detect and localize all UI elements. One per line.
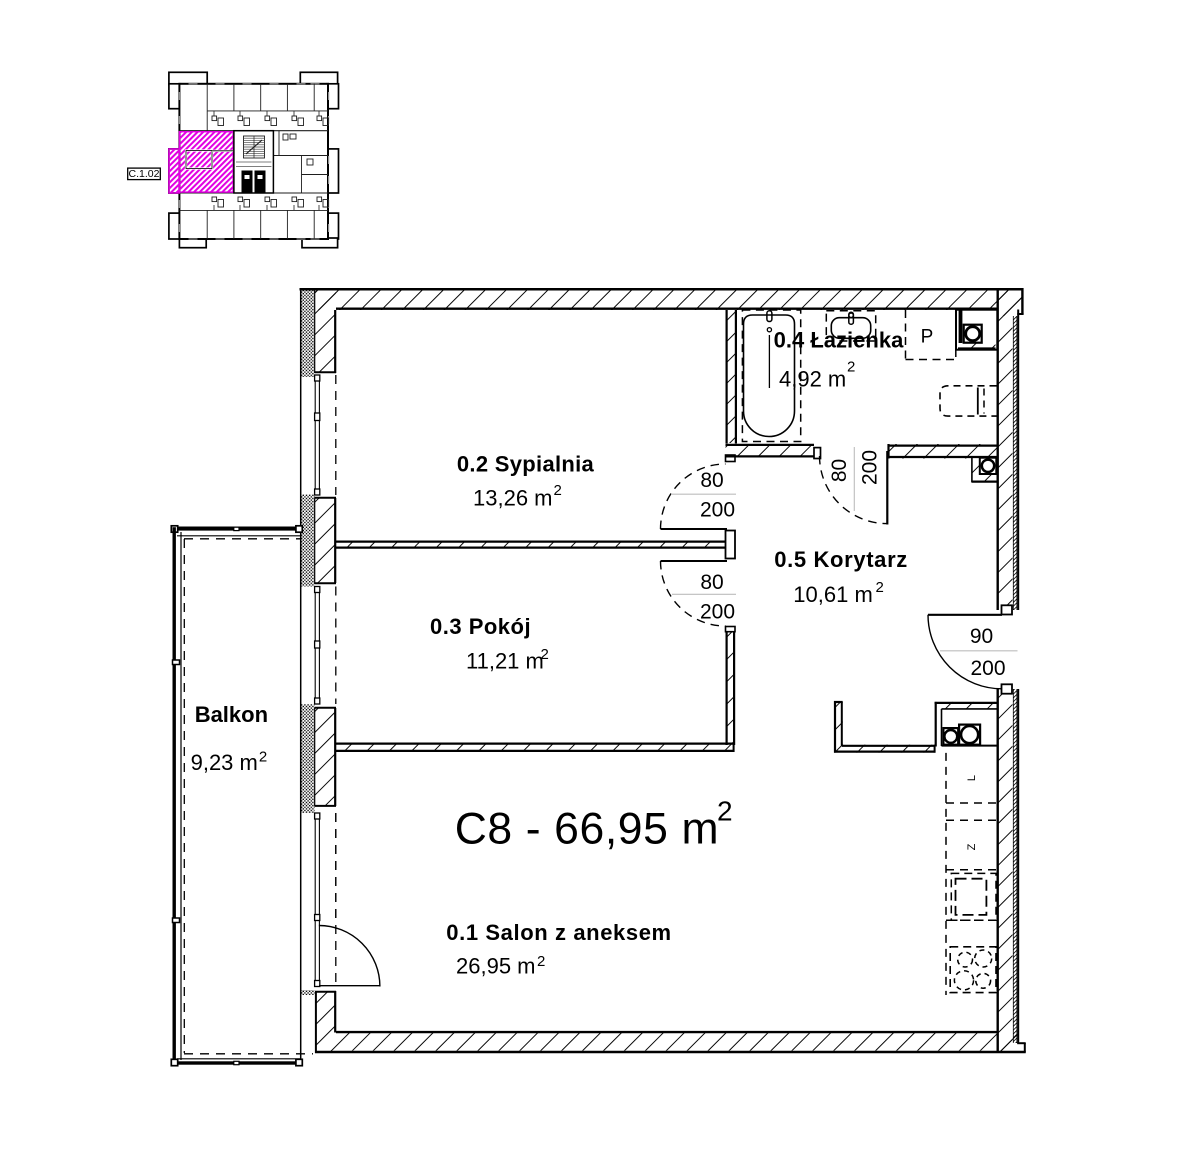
svg-text:200: 200: [970, 657, 1005, 680]
svg-text:9,23 m: 9,23 m: [191, 750, 258, 775]
svg-text:0.1 Salon z aneksem: 0.1 Salon z aneksem: [446, 920, 671, 945]
svg-text:Z: Z: [966, 843, 978, 850]
svg-text:C8 - 66,95 m: C8 - 66,95 m: [455, 805, 719, 854]
svg-text:2: 2: [717, 796, 733, 827]
svg-text:C.1.02: C.1.02: [129, 168, 160, 180]
svg-text:0.3 Pokój: 0.3 Pokój: [430, 614, 531, 639]
svg-text:80: 80: [700, 571, 723, 594]
svg-text:0.4 Łazienka: 0.4 Łazienka: [774, 328, 904, 353]
svg-text:26,95 m: 26,95 m: [456, 953, 536, 978]
svg-text:2: 2: [541, 646, 549, 663]
svg-text:200: 200: [700, 499, 735, 522]
svg-text:2: 2: [554, 482, 562, 499]
svg-text:2: 2: [847, 359, 855, 376]
svg-text:90: 90: [970, 625, 993, 648]
svg-text:P: P: [921, 327, 934, 348]
svg-text:200: 200: [859, 450, 882, 485]
svg-text:2: 2: [876, 579, 884, 596]
svg-text:4,92 m: 4,92 m: [779, 367, 846, 392]
svg-text:11,21 m: 11,21 m: [466, 649, 544, 674]
svg-text:200: 200: [700, 601, 735, 624]
svg-text:2: 2: [537, 953, 545, 970]
svg-text:10,61 m: 10,61 m: [793, 582, 873, 607]
svg-text:0.5 Korytarz: 0.5 Korytarz: [774, 547, 908, 572]
svg-text:L: L: [966, 775, 978, 781]
svg-text:13,26 m: 13,26 m: [473, 485, 553, 510]
svg-text:2: 2: [259, 749, 267, 766]
svg-text:Balkon: Balkon: [195, 702, 268, 727]
svg-text:0.2 Sypialnia: 0.2 Sypialnia: [457, 452, 595, 477]
svg-text:80: 80: [828, 459, 851, 482]
svg-text:80: 80: [700, 469, 723, 492]
